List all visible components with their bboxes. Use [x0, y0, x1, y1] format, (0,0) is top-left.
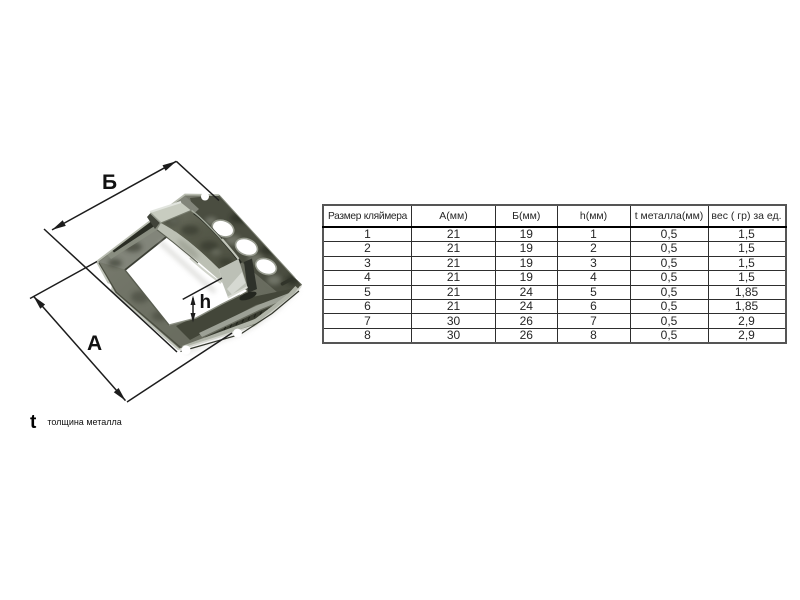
svg-text:Б: Б [102, 171, 117, 194]
svg-text:А: А [87, 332, 102, 355]
svg-text:h: h [200, 292, 212, 313]
